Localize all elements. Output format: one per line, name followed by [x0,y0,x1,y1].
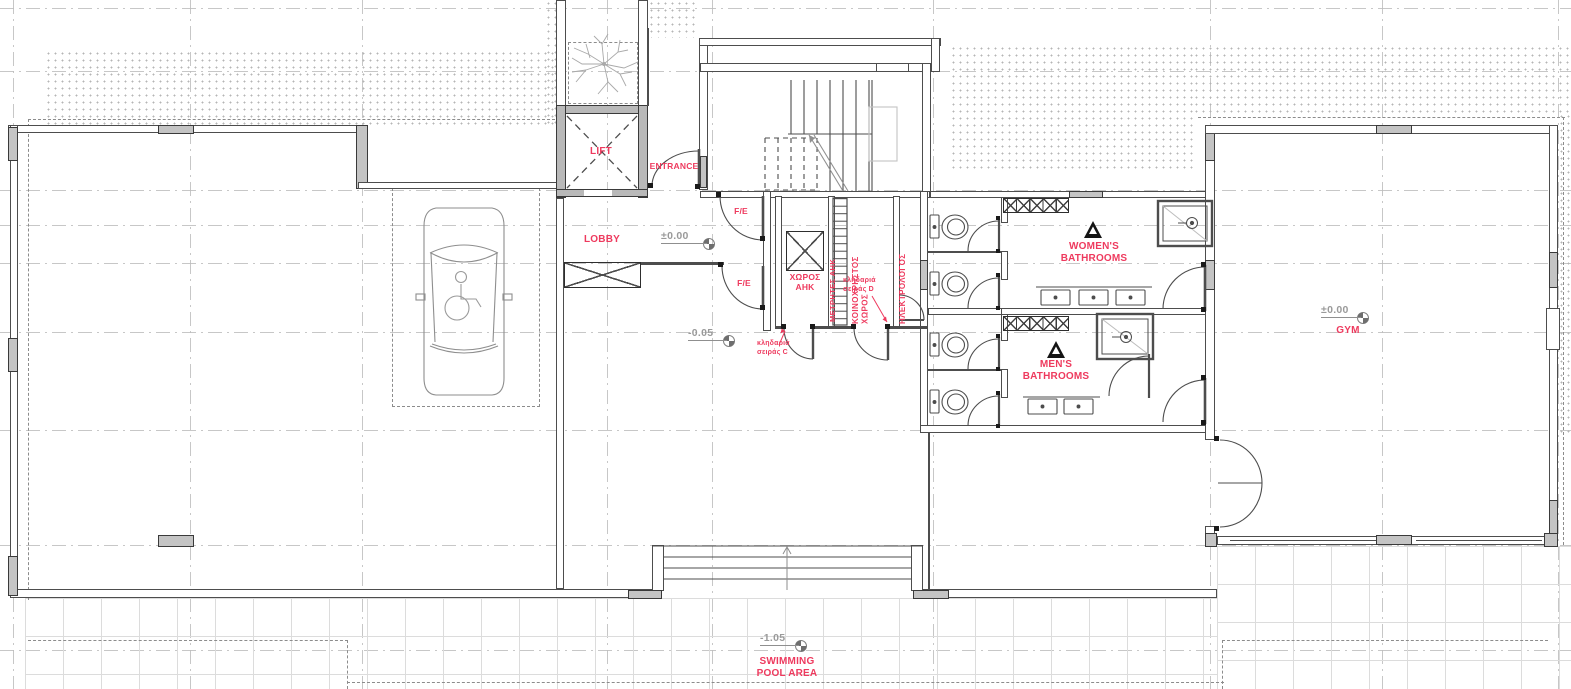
showers [1097,201,1212,359]
level-markers [704,239,1369,652]
sinks [1023,287,1152,414]
toilets [930,215,968,414]
accessible-car [416,208,512,395]
pool-steps [652,546,923,590]
room-label-entrance: ENTRANCE [644,161,704,171]
staircase [765,80,897,191]
annotation-lock-c: κληδαριά σειράς C [757,340,803,358]
room-label-common: ΚΟΙΝΟΧΡΗΣΤΟΣ ΧΩΡΟΣ [851,200,877,324]
room-label-mens-bathrooms: MEN'S BATHROOMS [1000,359,1112,383]
level-marker-lobby: ±0.00 [661,230,707,244]
room-label-womens-bathrooms: WOMEN'S BATHROOMS [1038,241,1150,265]
floor-plan: LIFT ENTRANCE LOBBY F/E F/E ΧΩΡΟΣ ΑΗΚ ΜΕ… [0,0,1571,689]
level-marker-pool: -1.05 [760,632,799,646]
level-marker-south: -0.05 [688,327,727,341]
area-label-swimming-pool: SWIMMING POOL AREA [742,656,832,680]
room-label-lift: LIFT [578,146,624,158]
room-label-ahk: ΧΩΡΟΣ ΑΗΚ [780,272,830,292]
room-label-electrical: ΗΛΕΚΤΡΟΛΟΓΟΣ [898,200,911,324]
door-label-fe-upper: F/E [726,206,756,216]
level-marker-gym: ±0.00 [1321,304,1361,318]
door-label-fe-lower: F/E [729,278,759,288]
room-label-ahk-meters: ΜΕΤΡΗΤΕΣ ΑΗΚ [829,204,842,322]
room-label-gym: GYM [1326,325,1370,337]
annotation-lock-d: κληδαριά σειράς D [843,277,889,295]
tree [572,34,638,94]
room-label-lobby: LOBBY [576,234,628,246]
